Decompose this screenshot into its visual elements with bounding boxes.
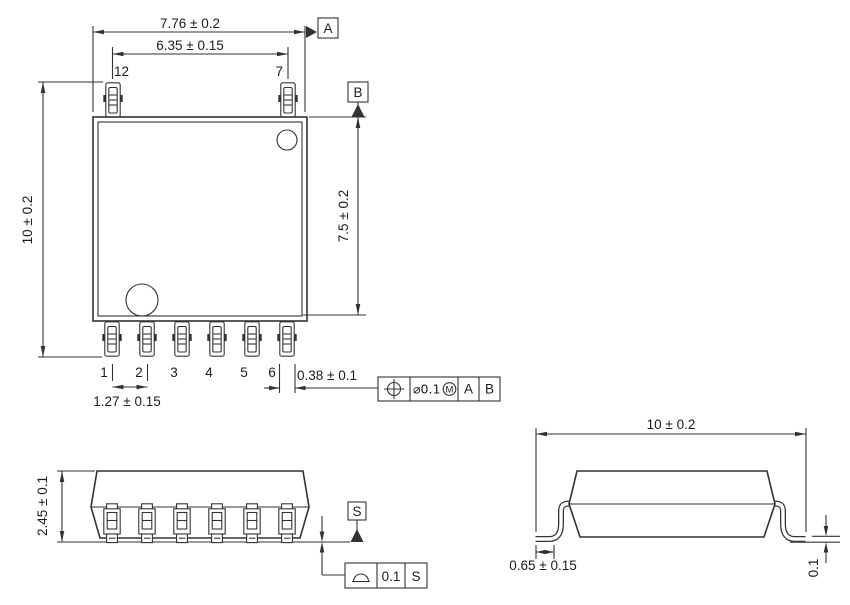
side-view-body <box>91 471 309 538</box>
dim-overall-width-label: 10 ± 0.2 <box>647 417 696 432</box>
datum-b: B <box>348 82 368 117</box>
end-view-body <box>569 471 775 537</box>
dim-height: 2.45 ± 0.1 <box>35 471 95 542</box>
top-view: 7.76 ± 0.2 A 6.35 ± 0.15 12 7 10 ± 0.2 <box>20 16 500 409</box>
pin-2-label: 2 <box>135 365 143 380</box>
drawing-svg: 7.76 ± 0.2 A 6.35 ± 0.15 12 7 10 ± 0.2 <box>0 0 850 605</box>
datum-triangle-icon <box>351 529 364 542</box>
dim-lead-width: 0.38 ± 0.1 <box>264 364 378 393</box>
datum-b-label: B <box>353 85 362 100</box>
dim-lead-span-label: 6.35 ± 0.15 <box>156 38 223 53</box>
dim-overall-length: 10 ± 0.2 <box>20 82 103 357</box>
dim-foot-length-label: 0.65 ± 0.15 <box>509 558 576 573</box>
dim-body-length: 7.5 ± 0.2 <box>303 117 366 315</box>
datum-s: S <box>348 502 366 542</box>
pin-1-label: 1 <box>100 365 108 380</box>
package-outline-drawing: 7.76 ± 0.2 A 6.35 ± 0.15 12 7 10 ± 0.2 <box>0 0 850 605</box>
fcf-seating-tolerance-label: 0.1 <box>382 569 401 584</box>
fcf-datum1-label: A <box>464 382 473 397</box>
datum-triangle-icon <box>352 104 365 117</box>
dim-lead-span-top: 6.35 ± 0.15 <box>113 38 289 79</box>
dim-lead-pitch-label: 1.27 ± 0.15 <box>93 394 160 409</box>
pin-12-label: 12 <box>114 64 129 79</box>
dim-height-label: 2.45 ± 0.1 <box>35 476 50 536</box>
pin-3-label: 3 <box>170 365 178 380</box>
dim-body-length-label: 7.5 ± 0.2 <box>336 190 351 242</box>
pin-7-label: 7 <box>275 64 283 79</box>
end-view: 10 ± 0.2 0.65 ± 0.15 0.1 <box>509 417 840 577</box>
dim-standoff: 0.1 <box>790 515 840 577</box>
fcf-position: ⌀0.1 M A B <box>378 377 500 401</box>
pin-number-labels: 1 2 3 4 5 6 <box>100 365 276 380</box>
datum-triangle-icon <box>306 26 317 38</box>
pin-6-label: 6 <box>268 365 276 380</box>
dim-lead-width-label: 0.38 ± 0.1 <box>297 368 357 383</box>
side-view: 2.45 ± 0.1 S 0.1 S <box>35 471 427 588</box>
fcf-seating: 0.1 S <box>345 563 427 588</box>
fcf-tolerance-label: ⌀0.1 <box>413 382 440 397</box>
fcf-modifier-label: M <box>446 385 454 396</box>
datum-s-label: S <box>352 504 361 519</box>
dim-overall-length-label: 10 ± 0.2 <box>20 196 35 245</box>
pin-5-label: 5 <box>240 365 248 380</box>
datum-a-label: A <box>323 21 332 36</box>
fcf-datum2-label: B <box>485 382 494 397</box>
dim-foot-length: 0.65 ± 0.15 <box>509 545 576 573</box>
seating-plane-pointers <box>320 516 345 575</box>
top-view-body <box>93 117 307 321</box>
dim-standoff-label: 0.1 <box>806 559 821 578</box>
fcf-seating-datum-label: S <box>411 569 420 584</box>
pin-4-label: 4 <box>205 365 213 380</box>
body-outline <box>93 117 307 321</box>
dim-body-width-label: 7.76 ± 0.2 <box>160 16 220 31</box>
body-outline <box>91 471 309 538</box>
datum-a: A <box>306 18 338 38</box>
